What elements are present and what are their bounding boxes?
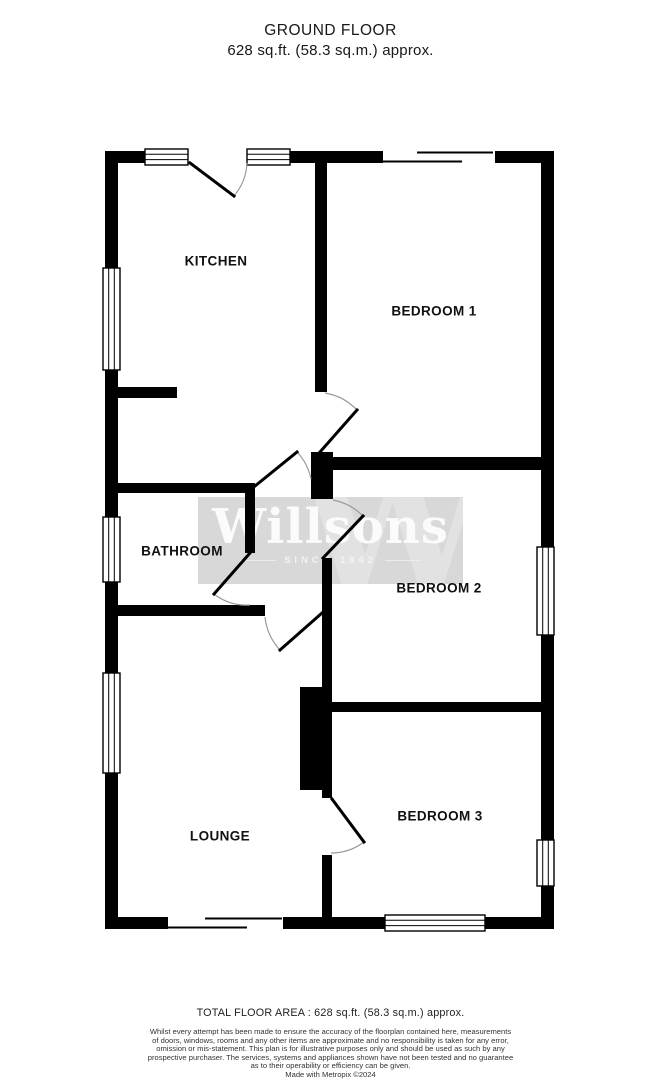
plan-title-block: GROUND FLOOR 628 sq.ft. (58.3 sq.m.) app… [0, 21, 661, 60]
windows [103, 149, 554, 931]
room-label-lounge: LOUNGE [190, 829, 250, 844]
room-label-bedroom2: BEDROOM 2 [396, 581, 481, 596]
total-floor-area: TOTAL FLOOR AREA : 628 sq.ft. (58.3 sq.m… [0, 1007, 661, 1019]
room-label-kitchen: KITCHEN [185, 254, 248, 269]
room-label-bathroom: BATHROOM [141, 544, 223, 559]
disclaimer-block: Whilst every attempt has been made to en… [0, 1028, 661, 1079]
floorplan-drawing [0, 0, 661, 1080]
floor-title: GROUND FLOOR [0, 21, 661, 41]
walls [105, 151, 554, 929]
floorplan-page: { "header": { "title": "GROUND FLOOR", "… [0, 0, 661, 1080]
floor-area-subtitle: 628 sq.ft. (58.3 sq.m.) approx. [0, 41, 661, 60]
room-label-bedroom3: BEDROOM 3 [397, 809, 482, 824]
metropix-credit: Made with Metropix ©2024 [0, 1071, 661, 1080]
room-label-bedroom1: BEDROOM 1 [391, 304, 476, 319]
